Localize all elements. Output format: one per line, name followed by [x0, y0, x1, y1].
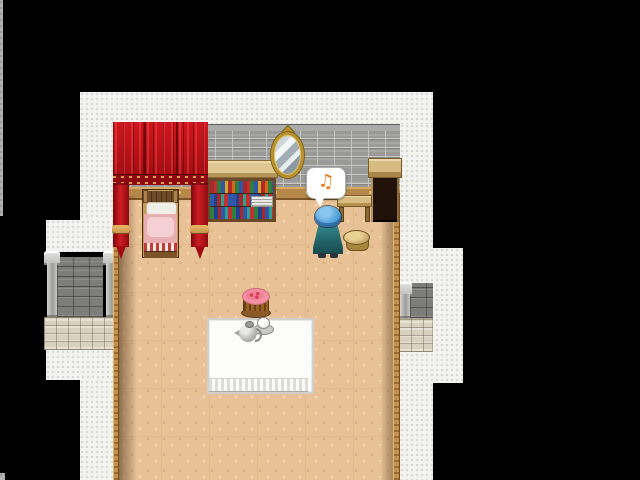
cake-frosting-swirl — [246, 291, 264, 300]
stool[interactable] — [343, 230, 370, 250]
right-pillar-shaft — [400, 294, 410, 318]
stool-seat — [343, 230, 370, 245]
curtain-panel-right — [191, 183, 208, 247]
music-balloon: ♫ — [306, 167, 346, 199]
curtain-tail-left — [116, 246, 126, 259]
curtain-tieback-right — [190, 225, 209, 233]
screen-corner-tile-sliver — [0, 473, 5, 480]
character-robe — [313, 225, 343, 254]
bed-post-right — [173, 190, 178, 203]
bed-footboard — [144, 251, 177, 258]
game-viewport[interactable]: ♫ — [0, 0, 640, 480]
curtain-panel-left — [113, 183, 129, 247]
mirror-glass — [271, 132, 304, 178]
wall-mirror[interactable] — [271, 128, 304, 178]
bookshelf[interactable] — [205, 160, 278, 222]
curtain-valance — [113, 122, 208, 185]
teapot-lid — [245, 321, 254, 328]
right-wall-shadow — [380, 196, 393, 480]
bed-headboard — [146, 191, 175, 202]
bed[interactable] — [143, 190, 178, 257]
room-right-edge-trim — [393, 193, 400, 480]
book-row-bottom — [210, 207, 273, 219]
bed-striped-hem — [144, 243, 177, 251]
walkway-left-wide-upper — [46, 220, 113, 252]
teapot — [234, 321, 262, 345]
wardrobe-top-slab — [368, 158, 402, 178]
screen-edge-tile-sliver — [0, 0, 3, 216]
book-row-top — [210, 181, 273, 193]
walkway-left-wide-lower — [46, 350, 113, 380]
walkway-left-upper — [80, 124, 113, 220]
music-note-icon: ♫ — [306, 166, 347, 198]
character-foot-left — [318, 253, 326, 258]
walkway-top — [80, 92, 433, 124]
bed-post-left — [143, 190, 148, 203]
right-stone-wall — [410, 283, 433, 318]
right-cobblestone-base — [399, 318, 433, 352]
bookshelf-counter-top — [205, 160, 278, 178]
bookshelf-body — [207, 178, 276, 222]
wardrobe-open-interior — [371, 178, 399, 222]
character-foot-right — [330, 253, 338, 258]
book-stack-white — [251, 196, 273, 207]
curtain-tail-right — [195, 246, 205, 259]
side-table-leg-right — [365, 207, 370, 222]
curtain-tieback-left — [112, 225, 130, 233]
walkway-left-lower — [80, 380, 113, 480]
character-hair — [315, 206, 341, 227]
tablecloth-fringe — [209, 378, 308, 392]
left-cobblestone-base — [44, 317, 118, 350]
left-stone-wall — [57, 257, 103, 317]
bed-blanket-highlight — [147, 217, 174, 237]
music-balloon-tail — [314, 194, 328, 208]
character-villager[interactable] — [312, 205, 344, 258]
cake[interactable] — [241, 288, 269, 316]
walkway-right-upper — [400, 124, 433, 248]
walkway-right-lower — [400, 383, 433, 480]
wardrobe[interactable] — [368, 158, 402, 222]
left-pillar-shaft-a — [47, 263, 57, 317]
